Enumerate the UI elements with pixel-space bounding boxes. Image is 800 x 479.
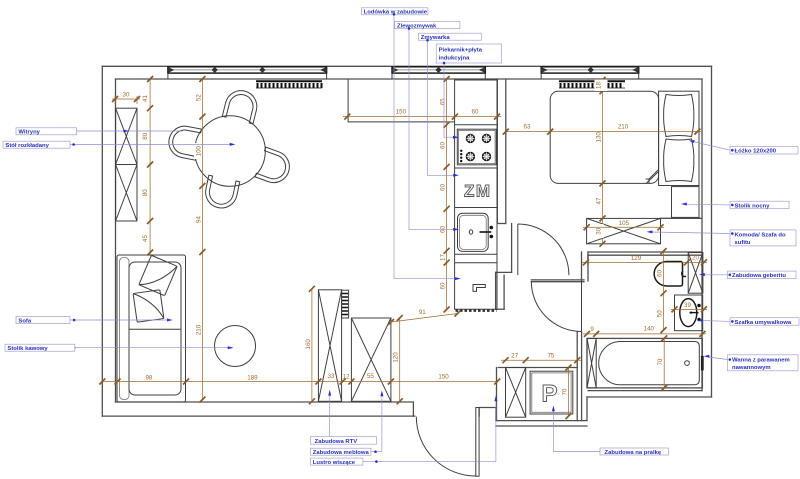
svg-text:Komoda/ Szafa do: Komoda/ Szafa do [735, 232, 786, 238]
svg-text:39: 39 [684, 302, 691, 309]
svg-text:65: 65 [440, 98, 447, 105]
svg-text:Zabudowa geberitu: Zabudowa geberitu [732, 273, 786, 279]
svg-text:Zabudowa RTV: Zabudowa RTV [315, 439, 358, 445]
svg-text:9: 9 [590, 326, 594, 333]
svg-text:80: 80 [142, 132, 149, 139]
svg-text:47: 47 [596, 197, 603, 204]
svg-text:Szafka umywalkowa: Szafka umywalkowa [735, 320, 792, 326]
svg-text:Piekarnik+płyta: Piekarnik+płyta [439, 48, 483, 54]
svg-text:Stolik kawowy: Stolik kawowy [7, 346, 48, 352]
svg-text:100: 100 [195, 145, 202, 156]
svg-text:91: 91 [419, 309, 426, 316]
svg-text:60: 60 [440, 184, 447, 191]
svg-text:P: P [542, 381, 558, 408]
svg-text:140: 140 [644, 326, 655, 333]
svg-text:150: 150 [396, 109, 407, 116]
svg-text:sufitu: sufitu [735, 240, 751, 246]
svg-text:55: 55 [367, 373, 374, 380]
svg-text:Stół rozkładany: Stół rozkładany [5, 143, 49, 149]
svg-text:105: 105 [619, 220, 630, 227]
svg-text:Sofa: Sofa [18, 318, 31, 324]
svg-text:nawannowym: nawannowym [732, 365, 771, 371]
svg-text:45: 45 [142, 235, 149, 242]
svg-text:12: 12 [343, 373, 350, 380]
svg-text:70: 70 [562, 388, 569, 395]
svg-text:150: 150 [438, 374, 449, 381]
svg-text:indukcyjna: indukcyjna [439, 56, 470, 62]
svg-text:60: 60 [472, 109, 479, 116]
svg-text:80: 80 [142, 189, 149, 196]
svg-text:60: 60 [440, 142, 447, 149]
svg-text:94: 94 [195, 216, 202, 223]
svg-text:30: 30 [123, 92, 130, 99]
svg-text:41: 41 [142, 95, 149, 102]
svg-text:60: 60 [657, 270, 664, 277]
svg-text:210: 210 [618, 124, 629, 131]
svg-text:20: 20 [692, 255, 699, 262]
svg-text:Witryny: Witryny [18, 130, 40, 136]
svg-text:210: 210 [195, 324, 202, 335]
svg-text:18: 18 [596, 82, 603, 89]
svg-text:Stolik nocny: Stolik nocny [735, 203, 771, 209]
svg-text:75: 75 [547, 353, 554, 360]
svg-text:120: 120 [393, 352, 400, 363]
svg-text:160: 160 [305, 339, 312, 350]
svg-text:Zlewozmywak: Zlewozmywak [397, 23, 437, 29]
svg-text:Lodówka w zabudowie: Lodówka w zabudowie [364, 10, 428, 16]
svg-text:33: 33 [327, 373, 334, 380]
svg-text:129: 129 [631, 255, 642, 262]
svg-text:130: 130 [596, 132, 603, 143]
svg-text:63: 63 [524, 124, 531, 131]
svg-text:ZM: ZM [464, 182, 492, 201]
svg-text:Łóżko 120x200: Łóżko 120x200 [735, 149, 777, 155]
svg-text:Zabudowa na pralkę: Zabudowa na pralkę [605, 450, 662, 456]
svg-text:27: 27 [511, 353, 518, 360]
svg-text:60: 60 [440, 282, 447, 289]
svg-text:Lustro wiszące: Lustro wiszące [313, 460, 356, 466]
svg-text:Zmywarka: Zmywarka [421, 35, 451, 41]
svg-text:50: 50 [657, 310, 664, 317]
svg-text:Zabudowa meblowa: Zabudowa meblowa [313, 450, 370, 456]
svg-text:30: 30 [596, 227, 603, 234]
svg-text:Wanna z parawanem: Wanna z parawanem [732, 357, 790, 363]
svg-text:70: 70 [657, 358, 664, 365]
svg-text:52: 52 [195, 94, 202, 101]
svg-text:189: 189 [247, 374, 258, 381]
svg-text:17: 17 [440, 254, 447, 261]
svg-text:98: 98 [145, 374, 152, 381]
